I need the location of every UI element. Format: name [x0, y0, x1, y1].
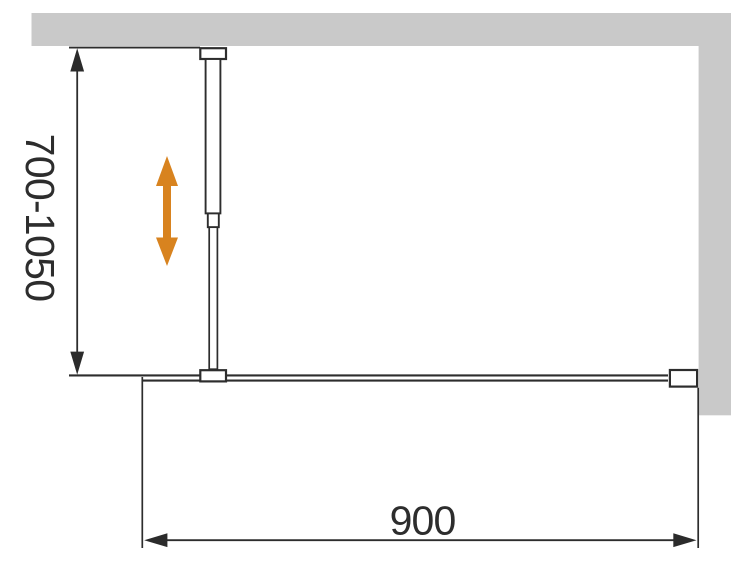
- svg-text:900: 900: [390, 498, 456, 544]
- svg-text:700-1050: 700-1050: [17, 134, 63, 302]
